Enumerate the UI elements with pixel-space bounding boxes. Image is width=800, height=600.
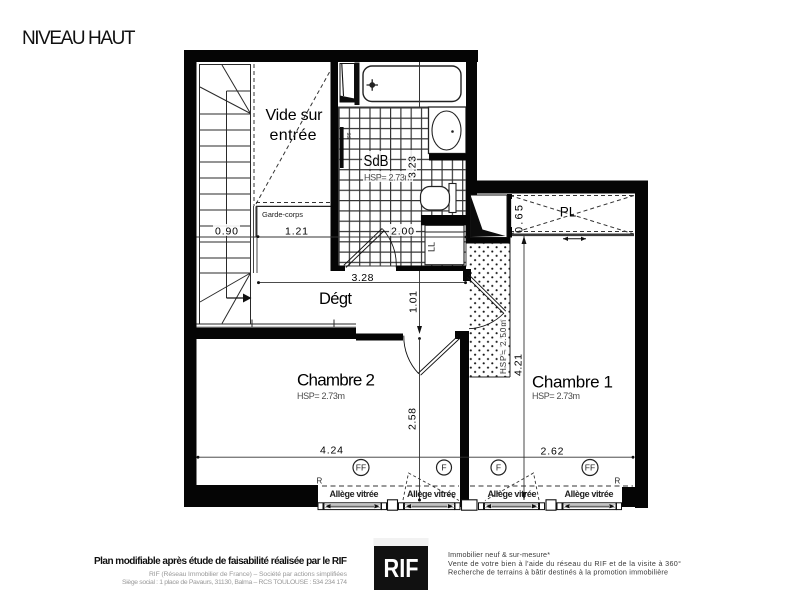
- svg-text:2.62: 2.62: [541, 446, 564, 458]
- svg-text:HSP= 2.73m: HSP= 2.73m: [532, 391, 580, 401]
- svg-text:FF: FF: [585, 463, 595, 473]
- svg-text:PL: PL: [560, 205, 577, 220]
- svg-text:Chambre 2: Chambre 2: [297, 371, 375, 390]
- svg-text:NIVEAU HAUT: NIVEAU HAUT: [22, 28, 136, 49]
- svg-text:LL: LL: [427, 242, 437, 252]
- svg-text:2.58: 2.58: [407, 408, 419, 430]
- svg-text:Recherche de terrains à bâtir: Recherche de terrains à bâtir destinés à…: [448, 568, 668, 577]
- svg-text:F: F: [496, 463, 501, 473]
- svg-text:R: R: [615, 477, 621, 486]
- svg-text:Dégt: Dégt: [319, 290, 352, 308]
- svg-text:Allège vitrée: Allège vitrée: [330, 489, 379, 499]
- svg-text:HSP= 2.73m: HSP= 2.73m: [364, 173, 412, 183]
- svg-text:1.01: 1.01: [408, 291, 420, 313]
- svg-text:Plan modifiable après étude de: Plan modifiable après étude de faisabili…: [94, 556, 347, 567]
- svg-text:SdB: SdB: [364, 153, 389, 170]
- svg-text:F: F: [441, 463, 446, 473]
- svg-text:HSP= 2.73m: HSP= 2.73m: [297, 391, 345, 401]
- svg-text:FF: FF: [356, 463, 366, 473]
- svg-text:0.90: 0.90: [215, 226, 238, 238]
- svg-text:HSP= 2.50m: HSP= 2.50m: [499, 320, 508, 374]
- svg-text:Allège vitrée: Allège vitrée: [407, 489, 456, 499]
- svg-text:0.65: 0.65: [514, 205, 526, 233]
- svg-text:RIF (Réseau Immobilier de Fran: RIF (Réseau Immobilier de France) – Soci…: [149, 571, 348, 578]
- svg-text:entrée: entrée: [270, 127, 317, 144]
- svg-text:ss: ss: [346, 132, 353, 139]
- svg-text:3.28: 3.28: [352, 272, 374, 284]
- svg-text:Immobilier neuf & sur-mesure*: Immobilier neuf & sur-mesure*: [448, 550, 550, 559]
- svg-text:1.21: 1.21: [285, 226, 308, 238]
- svg-text:4.24: 4.24: [320, 445, 343, 457]
- svg-text:Chambre 1: Chambre 1: [532, 373, 613, 392]
- svg-text:Allège vitrée: Allège vitrée: [565, 489, 614, 499]
- svg-text:Vide sur: Vide sur: [266, 107, 324, 124]
- svg-text:Allège vitrée: Allège vitrée: [488, 489, 537, 499]
- svg-text:2.00: 2.00: [391, 226, 414, 238]
- svg-text:R: R: [317, 477, 323, 486]
- svg-text:Siège social : 1 place de Pava: Siège social : 1 place de Pavaurs, 31130…: [122, 579, 347, 586]
- svg-text:3.23: 3.23: [407, 156, 419, 178]
- svg-text:RIF: RIF: [384, 553, 419, 583]
- svg-text:Garde-corps: Garde-corps: [262, 210, 303, 219]
- svg-text:4.21: 4.21: [513, 354, 525, 376]
